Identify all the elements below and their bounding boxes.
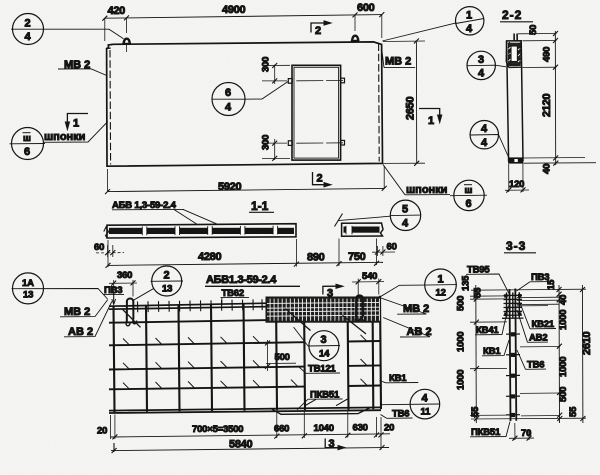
- svg-text:2: 2: [315, 25, 321, 37]
- svg-text:12: 12: [436, 288, 446, 299]
- svg-text:360: 360: [117, 270, 132, 281]
- svg-text:300: 300: [261, 135, 272, 150]
- svg-text:6: 6: [466, 198, 472, 210]
- svg-text:11: 11: [421, 407, 432, 418]
- svg-text:135: 135: [461, 275, 472, 291]
- svg-text:50: 50: [528, 25, 539, 35]
- svg-text:1: 1: [438, 274, 444, 286]
- svg-text:ш: ш: [23, 133, 31, 144]
- svg-text:1040: 1040: [314, 423, 334, 434]
- svg-text:890: 890: [307, 252, 325, 264]
- svg-text:1-1: 1-1: [251, 199, 269, 213]
- svg-text:3: 3: [478, 54, 484, 66]
- svg-text:20: 20: [384, 423, 394, 434]
- svg-text:4: 4: [225, 102, 232, 114]
- svg-text:630: 630: [353, 423, 368, 434]
- svg-text:2120: 2120: [541, 94, 553, 117]
- svg-text:120: 120: [509, 179, 524, 190]
- svg-text:4900: 4900: [222, 4, 245, 16]
- svg-text:2650: 2650: [405, 97, 417, 120]
- svg-text:60: 60: [387, 242, 397, 253]
- svg-text:3: 3: [321, 334, 327, 346]
- svg-text:40: 40: [558, 295, 569, 305]
- svg-text:1: 1: [428, 115, 434, 127]
- svg-text:4: 4: [402, 218, 409, 230]
- svg-text:3-3: 3-3: [506, 239, 526, 253]
- svg-text:5920: 5920: [218, 181, 241, 193]
- svg-text:2: 2: [164, 270, 170, 282]
- svg-text:1000: 1000: [456, 332, 467, 352]
- svg-text:300: 300: [261, 57, 272, 72]
- svg-text:шпонки: шпонки: [44, 131, 85, 143]
- svg-text:6: 6: [225, 87, 231, 99]
- svg-text:420: 420: [108, 5, 126, 17]
- svg-text:700×5=3500: 700×5=3500: [192, 424, 243, 435]
- svg-text:4: 4: [481, 123, 488, 135]
- svg-text:55: 55: [470, 406, 481, 417]
- svg-text:500: 500: [275, 352, 290, 363]
- svg-text:5: 5: [402, 204, 408, 216]
- svg-text:20: 20: [97, 426, 107, 437]
- svg-text:40: 40: [542, 164, 553, 174]
- svg-text:500: 500: [558, 387, 569, 402]
- svg-text:2610: 2610: [581, 332, 593, 355]
- svg-text:4: 4: [466, 23, 473, 35]
- svg-text:500: 500: [456, 296, 467, 311]
- svg-text:70: 70: [521, 428, 531, 439]
- svg-text:600: 600: [357, 2, 375, 14]
- svg-text:2: 2: [317, 173, 323, 185]
- svg-text:3: 3: [327, 288, 333, 300]
- svg-text:4: 4: [422, 393, 429, 405]
- svg-text:60: 60: [94, 242, 104, 253]
- svg-text:6: 6: [24, 146, 30, 158]
- svg-text:14: 14: [319, 349, 330, 360]
- svg-text:4280: 4280: [198, 251, 221, 263]
- svg-text:750: 750: [348, 251, 366, 263]
- svg-text:660: 660: [274, 424, 289, 435]
- svg-text:4: 4: [25, 31, 32, 43]
- svg-text:5840: 5840: [229, 439, 252, 451]
- svg-text:1000: 1000: [558, 357, 569, 377]
- svg-text:540: 540: [362, 271, 377, 282]
- svg-text:13: 13: [23, 290, 33, 301]
- svg-text:55: 55: [568, 406, 579, 417]
- svg-text:4: 4: [478, 68, 485, 80]
- svg-text:ш: ш: [465, 185, 473, 196]
- svg-text:1000: 1000: [558, 310, 569, 330]
- svg-text:55: 55: [473, 287, 484, 298]
- svg-text:13: 13: [162, 284, 172, 295]
- svg-text:МВ 2: МВ 2: [385, 56, 411, 68]
- svg-text:АБВ1.3-59-2.4: АБВ1.3-59-2.4: [206, 274, 277, 286]
- svg-text:2: 2: [25, 18, 31, 30]
- svg-text:4: 4: [481, 137, 488, 149]
- svg-text:490: 490: [542, 47, 553, 62]
- svg-text:2-2: 2-2: [502, 8, 522, 22]
- svg-text:1: 1: [73, 118, 79, 130]
- svg-text:1: 1: [466, 10, 472, 22]
- svg-text:1000: 1000: [456, 370, 467, 390]
- svg-text:1А: 1А: [22, 278, 34, 289]
